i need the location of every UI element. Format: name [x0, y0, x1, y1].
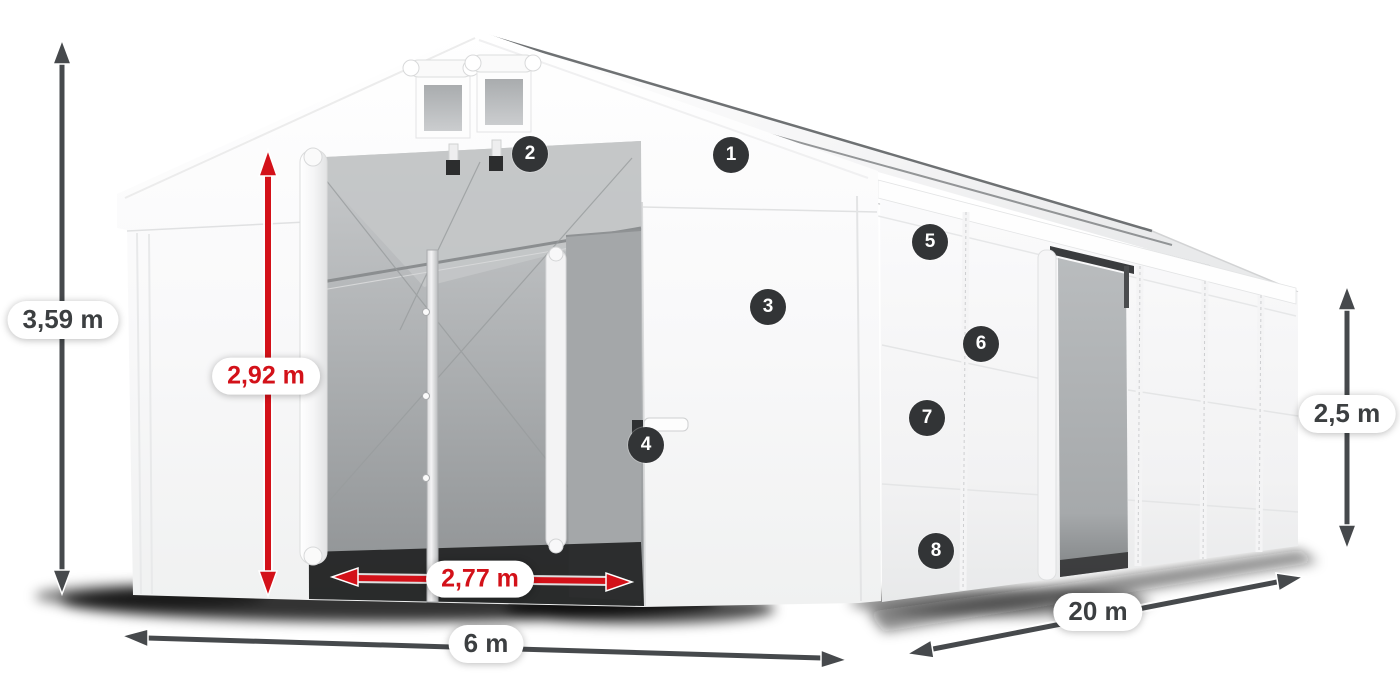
callout-badge-7[interactable]: 7	[909, 400, 945, 436]
side-door-opening	[1038, 246, 1134, 580]
dimension-label-total-height: 3,59 m	[8, 301, 119, 339]
front-door-opening	[300, 140, 644, 606]
callout-badge-3[interactable]: 3	[750, 289, 786, 325]
dimension-label-width: 6 m	[449, 625, 524, 663]
diagram-stage: 1 2 3 4 5 6 7 8 3,59 m 2,92 m 2,77 m 6 m…	[0, 0, 1400, 700]
callout-badge-6[interactable]: 6	[963, 326, 999, 362]
callout-badge-1[interactable]: 1	[713, 137, 749, 173]
dimension-label-door-height: 2,92 m	[212, 358, 320, 395]
callout-badge-4[interactable]: 4	[628, 427, 664, 463]
dimension-label-door-width: 2,77 m	[426, 561, 534, 598]
callout-badge-8[interactable]: 8	[918, 533, 954, 569]
dimension-label-side-height: 2,5 m	[1299, 395, 1396, 433]
dimension-label-length: 20 m	[1053, 593, 1142, 631]
callout-badge-2[interactable]: 2	[512, 136, 548, 172]
callout-badge-5[interactable]: 5	[912, 224, 948, 260]
tent-illustration	[0, 0, 1400, 700]
